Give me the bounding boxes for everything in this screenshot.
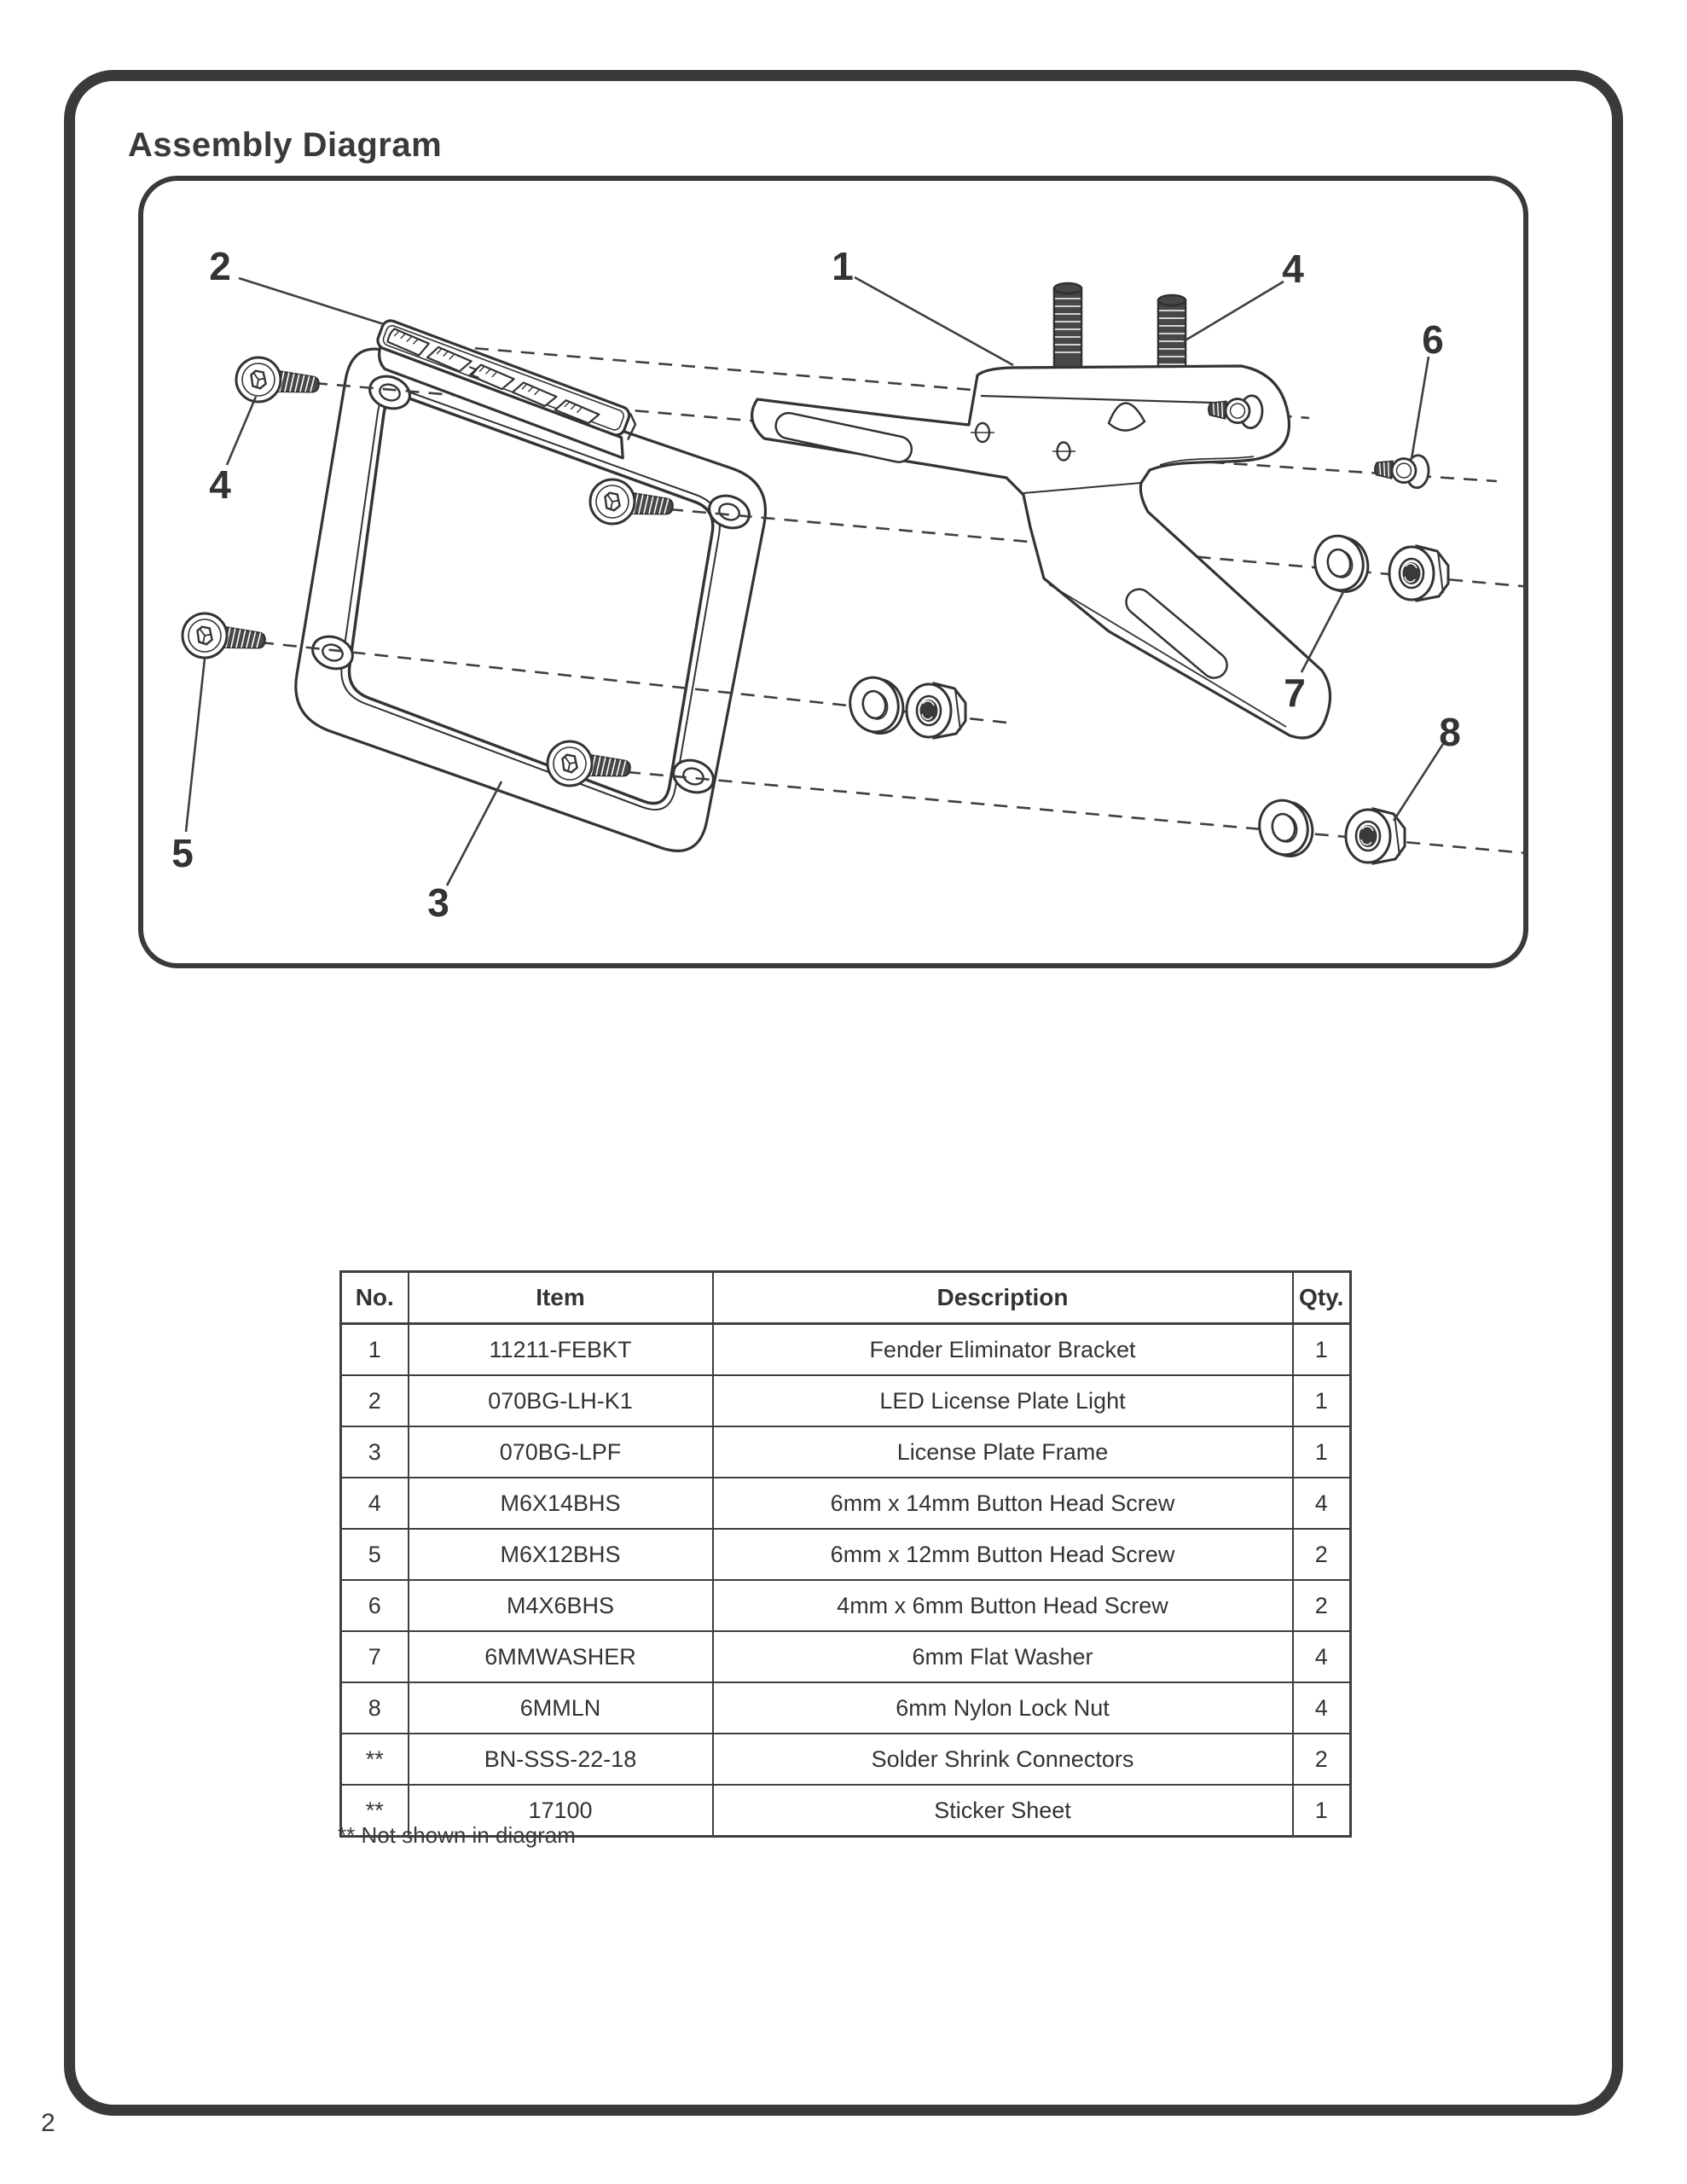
manual-page: { "page": { "title": "Assembly Diagram",… xyxy=(0,0,1687,2184)
cell-qty: 4 xyxy=(1293,1631,1351,1682)
lock-nut-drawing xyxy=(1389,546,1448,601)
cell-qty: 2 xyxy=(1293,1580,1351,1631)
cell-item: 6MMLN xyxy=(409,1682,713,1734)
col-header-no: No. xyxy=(341,1272,409,1324)
cell-description: LED License Plate Light xyxy=(713,1375,1293,1426)
cell-qty: 1 xyxy=(1293,1375,1351,1426)
callout-leader-2 xyxy=(239,278,384,324)
callout-4-top: 4 xyxy=(1282,247,1304,291)
cell-item: M6X12BHS xyxy=(409,1529,713,1580)
cell-no: 2 xyxy=(341,1375,409,1426)
callout-leader-4-left xyxy=(227,397,256,465)
callout-leader-8 xyxy=(1394,744,1443,821)
cell-description: 6mm x 14mm Button Head Screw xyxy=(713,1478,1293,1529)
button-head-screw-drawing xyxy=(181,612,267,663)
callout-leader-5 xyxy=(186,659,205,832)
callout-leader-1 xyxy=(855,277,1013,365)
cell-no: 3 xyxy=(341,1426,409,1478)
cell-description: Solder Shrink Connectors xyxy=(713,1734,1293,1785)
cell-description: License Plate Frame xyxy=(713,1426,1293,1478)
button-head-screw-drawing xyxy=(235,356,321,407)
bracket-stud-left xyxy=(1054,283,1081,374)
cell-item: 6MMWASHER xyxy=(409,1631,713,1682)
fender-eliminator-bracket-drawing xyxy=(752,283,1330,738)
flat-washer-drawing xyxy=(1254,794,1318,863)
col-header-description: Description xyxy=(713,1272,1293,1324)
m4-button-head-screw-drawing xyxy=(1374,452,1429,488)
cell-item: 11211-FEBKT xyxy=(409,1324,713,1376)
table-row: 4 M6X14BHS 6mm x 14mm Button Head Screw … xyxy=(341,1478,1351,1529)
callout-1: 1 xyxy=(832,244,854,288)
table-row: 5 M6X12BHS 6mm x 12mm Button Head Screw … xyxy=(341,1529,1351,1580)
parts-table-section: No. Item Description Qty. 1 11211-FEBKT … xyxy=(339,1270,1349,1838)
callout-5: 5 xyxy=(171,831,194,875)
cell-qty: 1 xyxy=(1293,1426,1351,1478)
cell-qty: 4 xyxy=(1293,1478,1351,1529)
exploded-view-diagram: 2 1 4 6 4 5 7 8 3 xyxy=(138,176,1528,968)
table-row: 2 070BG-LH-K1 LED License Plate Light 1 xyxy=(341,1375,1351,1426)
cell-no: 5 xyxy=(341,1529,409,1580)
callout-leader-3 xyxy=(447,781,501,886)
table-row: 7 6MMWASHER 6mm Flat Washer 4 xyxy=(341,1631,1351,1682)
page-title: Assembly Diagram xyxy=(128,126,442,165)
cell-no: 1 xyxy=(341,1324,409,1376)
parts-table: No. Item Description Qty. 1 11211-FEBKT … xyxy=(339,1270,1352,1838)
cell-item: 070BG-LH-K1 xyxy=(409,1375,713,1426)
cell-no: 8 xyxy=(341,1682,409,1734)
page-number: 2 xyxy=(41,2109,55,2138)
cell-qty: 2 xyxy=(1293,1734,1351,1785)
cell-no: ** xyxy=(341,1734,409,1785)
table-footnote: ** Not shown in diagram xyxy=(338,1822,576,1849)
flat-washer-drawing xyxy=(844,671,908,740)
callout-8: 8 xyxy=(1439,710,1461,754)
cell-description: 4mm x 6mm Button Head Screw xyxy=(713,1580,1293,1631)
cell-description: 6mm Flat Washer xyxy=(713,1631,1293,1682)
cell-qty: 1 xyxy=(1293,1785,1351,1837)
table-header-row: No. Item Description Qty. xyxy=(341,1272,1351,1324)
table-row: 3 070BG-LPF License Plate Frame 1 xyxy=(341,1426,1351,1478)
cell-no: 4 xyxy=(341,1478,409,1529)
cell-description: Fender Eliminator Bracket xyxy=(713,1324,1293,1376)
callout-3: 3 xyxy=(427,880,449,925)
callout-6: 6 xyxy=(1422,317,1444,362)
cell-item: 070BG-LPF xyxy=(409,1426,713,1478)
cell-no: 7 xyxy=(341,1631,409,1682)
table-row: 1 11211-FEBKT Fender Eliminator Bracket … xyxy=(341,1324,1351,1376)
flat-washer-drawing xyxy=(1309,530,1373,598)
cell-item: M4X6BHS xyxy=(409,1580,713,1631)
col-header-qty: Qty. xyxy=(1293,1272,1351,1324)
cell-item: M6X14BHS xyxy=(409,1478,713,1529)
cell-qty: 1 xyxy=(1293,1324,1351,1376)
table-row: 6 M4X6BHS 4mm x 6mm Button Head Screw 2 xyxy=(341,1580,1351,1631)
lock-nut-drawing xyxy=(907,683,965,738)
callout-leader-6 xyxy=(1412,357,1429,459)
cell-description: 6mm Nylon Lock Nut xyxy=(713,1682,1293,1734)
callout-leader-7 xyxy=(1301,590,1344,672)
table-row: ** BN-SSS-22-18 Solder Shrink Connectors… xyxy=(341,1734,1351,1785)
callout-7: 7 xyxy=(1284,671,1306,715)
col-header-item: Item xyxy=(409,1272,713,1324)
cell-qty: 4 xyxy=(1293,1682,1351,1734)
cell-description: Sticker Sheet xyxy=(713,1785,1293,1837)
table-row: 8 6MMLN 6mm Nylon Lock Nut 4 xyxy=(341,1682,1351,1734)
cell-description: 6mm x 12mm Button Head Screw xyxy=(713,1529,1293,1580)
callout-leader-4-top xyxy=(1184,282,1284,341)
cell-qty: 2 xyxy=(1293,1529,1351,1580)
cell-no: 6 xyxy=(341,1580,409,1631)
callout-2: 2 xyxy=(209,244,231,288)
cell-item: BN-SSS-22-18 xyxy=(409,1734,713,1785)
callout-4-left: 4 xyxy=(209,462,231,507)
